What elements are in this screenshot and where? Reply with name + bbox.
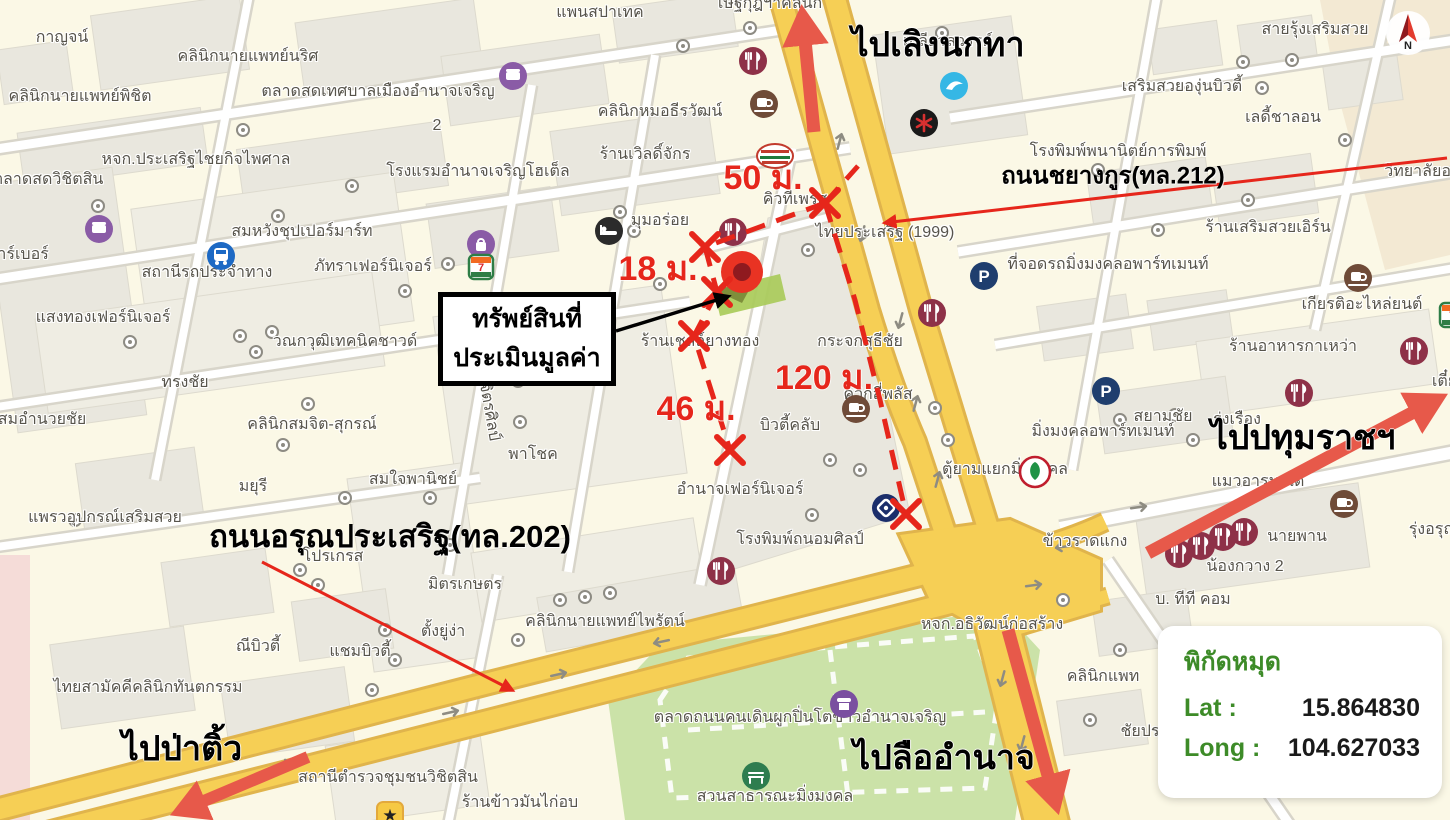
lat-label: Lat : bbox=[1184, 694, 1237, 723]
distance-label: 50 ม. bbox=[723, 150, 802, 204]
long-value: 104.627033 bbox=[1288, 734, 1420, 763]
distance-label: 18 ม. bbox=[618, 241, 697, 295]
direction-label: ไปป่าติ้ว bbox=[122, 721, 243, 775]
compass-n-label: N bbox=[1404, 40, 1412, 52]
compass: N bbox=[1384, 9, 1432, 57]
distance-label: 46 ม. bbox=[656, 381, 735, 435]
direction-label: ไปปทุมราชฯ bbox=[1211, 410, 1396, 464]
map-canvas: กาญจน์คลินิกนายแพทย์นริศคลินิกนายแพทย์พิ… bbox=[0, 0, 1450, 820]
property-callout: ทรัพย์สินที่ ประเมินมูลค่า bbox=[438, 292, 616, 386]
lat-value: 15.864830 bbox=[1302, 694, 1420, 723]
coordinates-panel-title: พิกัดหมุด bbox=[1184, 642, 1420, 682]
long-label: Long : bbox=[1184, 734, 1260, 763]
coordinates-panel: พิกัดหมุด Lat : 15.864830 Long : 104.627… bbox=[1158, 626, 1442, 798]
property-callout-line1: ทรัพย์สินที่ bbox=[472, 300, 582, 339]
road-name-label: ถนนอรุณประเสริฐ(ทล.202) bbox=[209, 511, 571, 561]
distance-label: 120 ม. bbox=[775, 350, 873, 404]
property-callout-line2: ประเมินมูลค่า bbox=[453, 339, 600, 378]
direction-label: ไปลืออำนาจ bbox=[853, 730, 1035, 784]
road-name-label: ถนนชยางกูร(ทล.212) bbox=[1001, 156, 1225, 195]
direction-label: ไปเลิงนกทา bbox=[851, 17, 1024, 71]
